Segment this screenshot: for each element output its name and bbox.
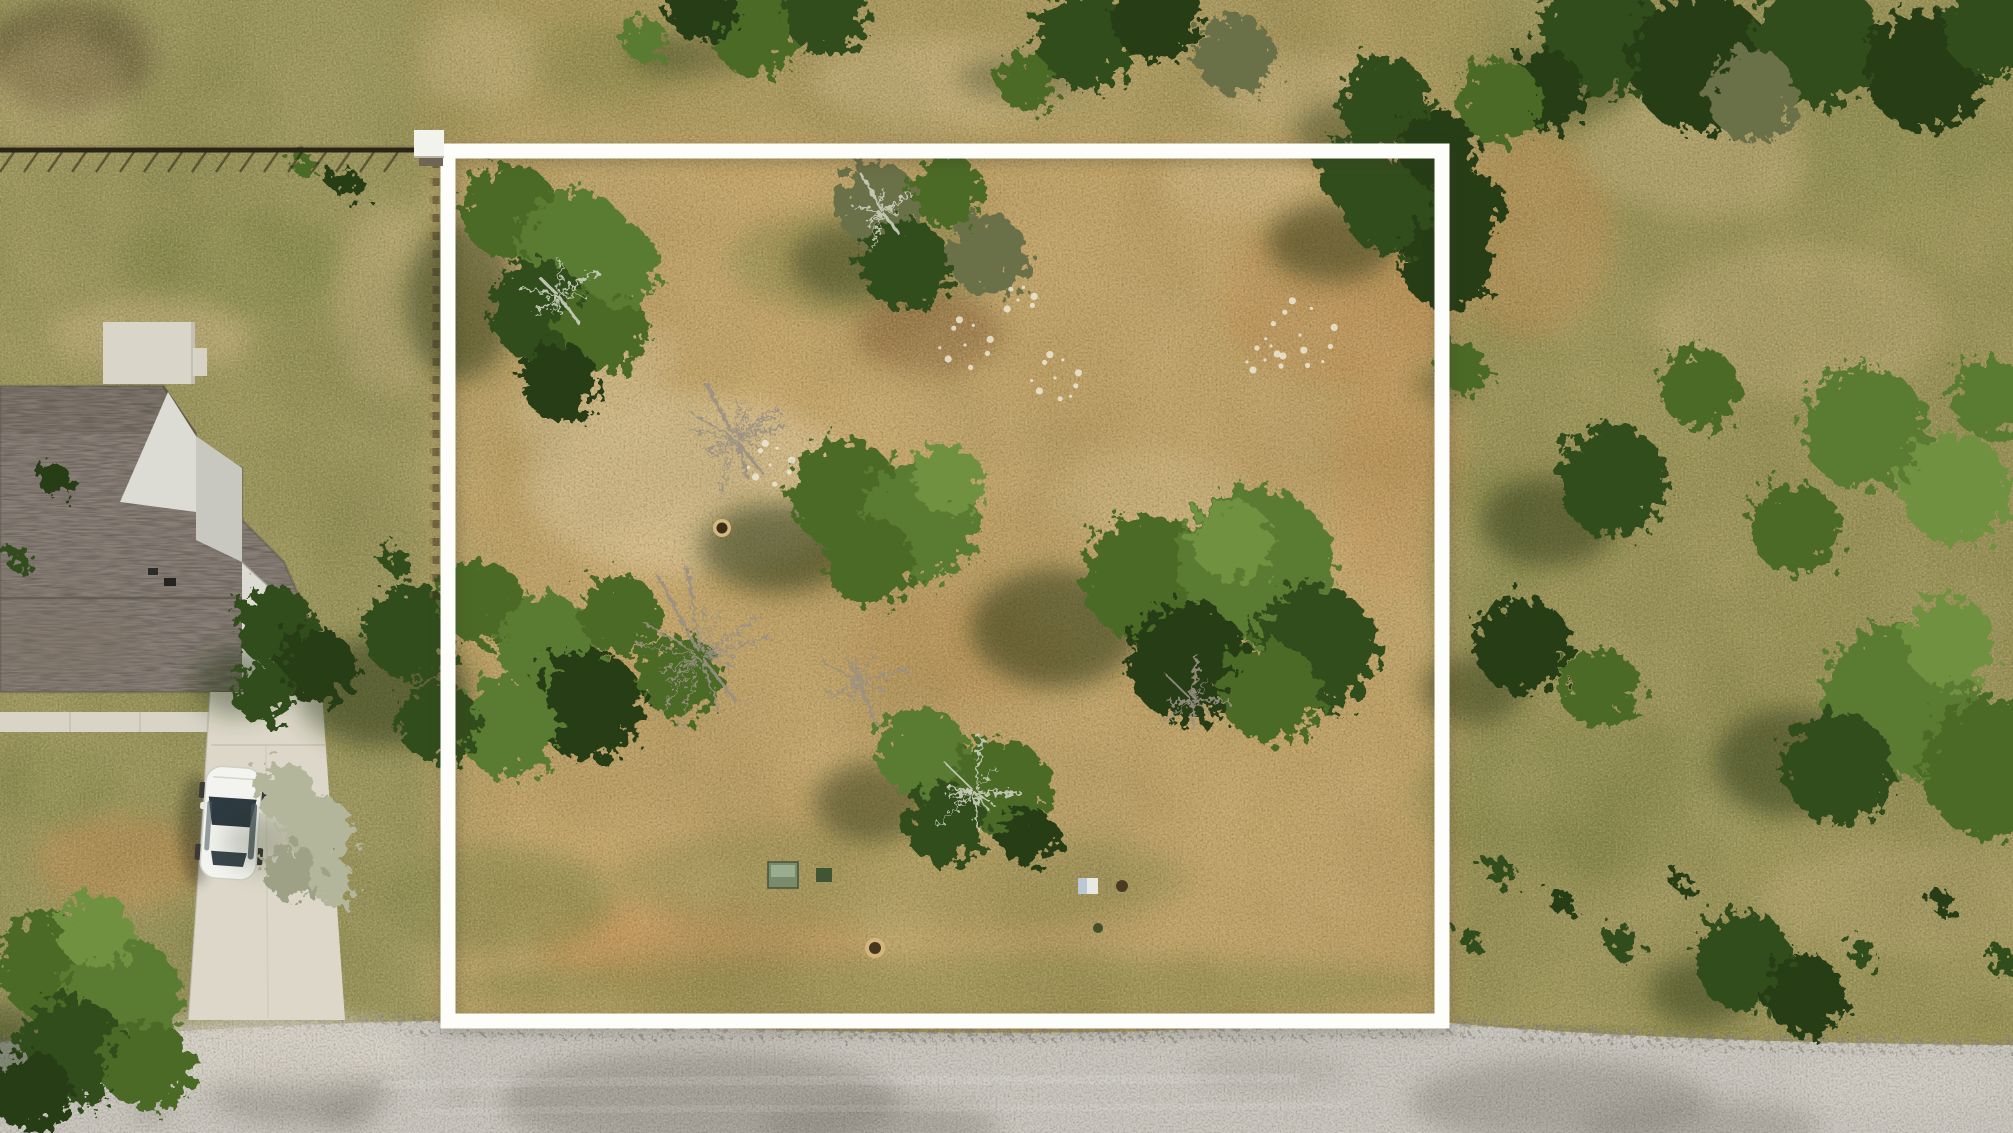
roof-vent <box>164 578 176 586</box>
rock <box>972 324 975 327</box>
burrow-hole <box>717 523 728 534</box>
aerial-photo <box>0 0 2013 1133</box>
rock <box>1331 324 1338 331</box>
rock <box>776 447 779 450</box>
canopy-blob <box>997 54 1053 110</box>
rock <box>1036 387 1043 394</box>
rock <box>1269 344 1272 347</box>
patio-step <box>193 348 207 376</box>
canopy-blob <box>623 18 667 62</box>
rock <box>1245 360 1248 363</box>
canopy-blob <box>912 156 984 228</box>
rock <box>1263 358 1266 361</box>
canopy-blob <box>1550 890 1574 914</box>
rock <box>1310 307 1313 310</box>
rock <box>1022 286 1025 289</box>
canopy-blob <box>1195 15 1275 95</box>
rock <box>1254 345 1259 350</box>
rock <box>956 316 963 323</box>
canopy-blob <box>1848 938 1876 966</box>
canopy-blob <box>1560 648 1640 728</box>
canopy-blob <box>398 682 478 762</box>
rock <box>1279 352 1286 359</box>
ground-spot <box>1093 923 1103 933</box>
rock <box>968 365 973 370</box>
canopy-blob <box>905 785 985 865</box>
car-mirror <box>200 802 206 809</box>
branch <box>558 297 559 313</box>
canopy-blob <box>580 225 660 305</box>
rock <box>985 351 990 356</box>
rock <box>762 440 769 447</box>
rock <box>1282 310 1287 315</box>
rock <box>1008 287 1013 292</box>
burrow-hole <box>869 942 881 954</box>
canopy-blob <box>103 1021 193 1111</box>
rock <box>963 343 966 346</box>
canopy-blob <box>7 547 33 573</box>
canopy-blob <box>1485 857 1515 887</box>
canopy-blob <box>1783 713 1893 823</box>
rock <box>787 470 792 475</box>
rock <box>951 326 956 331</box>
rock <box>772 482 777 487</box>
canopy-blob <box>1557 425 1667 535</box>
canopy-blob <box>860 220 950 310</box>
canopy-blob <box>948 215 1028 295</box>
fence-post-cap <box>414 130 444 157</box>
rock <box>1321 360 1324 363</box>
rock <box>1305 363 1310 368</box>
canopy-blob <box>1672 872 1692 892</box>
rock <box>752 473 759 480</box>
rock <box>1030 303 1035 308</box>
rock <box>1300 347 1307 354</box>
utility-box-green-lid <box>771 865 795 877</box>
rock <box>758 448 763 453</box>
branch <box>1192 703 1194 730</box>
rock <box>1328 344 1333 349</box>
rock <box>1031 293 1038 300</box>
canopy-blob <box>1707 50 1797 140</box>
roof-vent <box>148 568 158 575</box>
rock <box>768 463 771 466</box>
rock <box>747 466 750 469</box>
canopy-blob <box>1192 500 1272 580</box>
rock <box>1030 379 1033 382</box>
canopy-blob <box>1900 433 2010 543</box>
rock <box>1075 369 1082 376</box>
canopy-blob <box>1766 956 1846 1036</box>
canopy-blob <box>232 662 292 722</box>
canopy-blob <box>330 167 360 197</box>
rock <box>1069 395 1072 398</box>
canopy-blob <box>57 892 133 968</box>
canopy-blob <box>825 517 915 607</box>
canopy-blob <box>384 548 412 576</box>
rock <box>1249 366 1256 373</box>
canopy-blob <box>1905 597 1995 687</box>
canopy-blob <box>264 844 320 900</box>
rock <box>1061 358 1064 361</box>
canopy-blob <box>1474 597 1570 693</box>
canopy-blob <box>1750 483 1840 573</box>
rock <box>1264 337 1267 340</box>
canopy-blob <box>39 464 71 496</box>
rock <box>1004 305 1011 312</box>
rock <box>1016 298 1019 301</box>
canopy-blob <box>1460 928 1484 952</box>
rock <box>938 346 941 349</box>
canopy-blob <box>913 445 983 515</box>
patio-slab <box>103 322 195 384</box>
canopy-blob <box>580 575 660 655</box>
canopy-blob <box>1606 926 1638 958</box>
branch <box>980 792 1021 793</box>
rock <box>1298 333 1301 336</box>
rock <box>987 336 994 343</box>
rock <box>1042 360 1047 365</box>
rock <box>1278 363 1283 368</box>
canopy-blob <box>522 344 598 420</box>
rock <box>1058 396 1063 401</box>
marker-box-blue-half <box>1078 878 1087 894</box>
rock <box>1289 297 1296 304</box>
branch <box>975 796 977 828</box>
canopy-blob <box>1660 348 1740 428</box>
canopy-blob <box>1930 890 1954 914</box>
canopy-blob <box>1220 642 1320 742</box>
rock <box>1046 351 1053 358</box>
rock <box>945 355 952 362</box>
rock <box>1073 383 1078 388</box>
canopy-blob <box>310 860 354 904</box>
aerial-photo-canvas <box>0 0 2013 1133</box>
canopy-blob <box>998 808 1058 868</box>
rock <box>1053 376 1056 379</box>
branch <box>1196 700 1230 701</box>
sidewalk <box>0 712 212 732</box>
rock <box>1271 321 1276 326</box>
utility-box-small <box>816 868 832 882</box>
rock <box>788 457 795 464</box>
ground-spot <box>1116 880 1128 892</box>
